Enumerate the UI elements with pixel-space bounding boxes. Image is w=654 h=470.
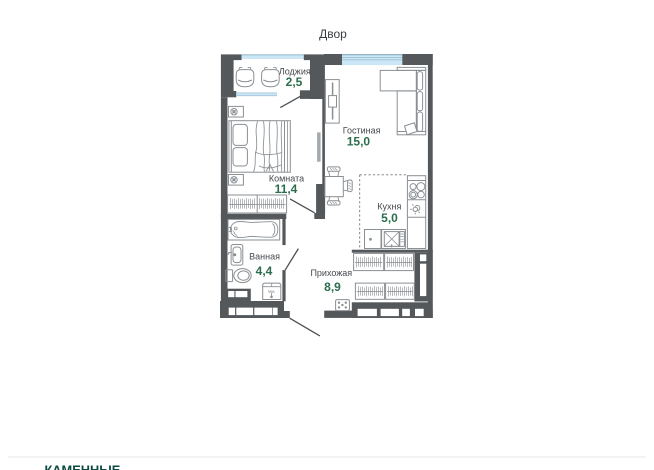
svg-text:КАМЕННЫЕ: КАМЕННЫЕ [45,462,121,470]
svg-text:Кухня: Кухня [377,201,401,211]
svg-text:Двор: Двор [319,27,347,41]
svg-text:11,4: 11,4 [275,182,298,196]
svg-text:4,4: 4,4 [256,264,273,278]
svg-text:Ванная: Ванная [249,251,280,261]
svg-text:Прихожая: Прихожая [310,268,352,278]
svg-text:15,0: 15,0 [347,134,371,148]
svg-text:5,0: 5,0 [381,211,398,225]
svg-text:8,9: 8,9 [324,280,341,294]
svg-text:2,5: 2,5 [286,75,303,89]
